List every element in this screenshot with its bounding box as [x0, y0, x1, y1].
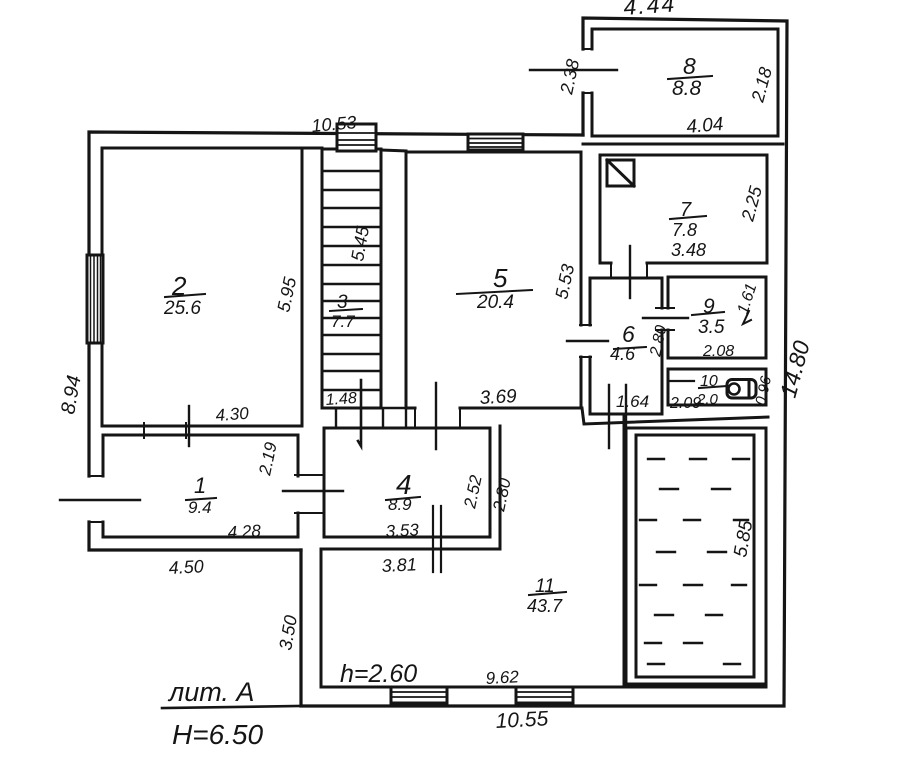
svg-text:2.38: 2.38: [556, 57, 583, 96]
svg-text:2.52: 2.52: [460, 473, 486, 511]
svg-text:1.48: 1.48: [325, 390, 357, 409]
svg-text:3.69: 3.69: [479, 386, 517, 409]
svg-text:10.55: 10.55: [495, 707, 549, 733]
svg-text:3.53: 3.53: [385, 520, 420, 541]
svg-text:4.30: 4.30: [215, 404, 250, 425]
svg-text:10.53: 10.53: [311, 112, 358, 136]
svg-text:9: 9: [703, 295, 715, 318]
svg-text:9.62: 9.62: [485, 667, 520, 688]
svg-text:8.8: 8.8: [672, 77, 702, 100]
svg-text:4.6: 4.6: [610, 344, 636, 364]
svg-text:4.44: 4.44: [623, 0, 677, 20]
svg-text:3.48: 3.48: [671, 240, 706, 260]
svg-text:3.5: 3.5: [698, 317, 725, 338]
svg-text:7.8: 7.8: [672, 220, 697, 240]
svg-text:43.7: 43.7: [527, 596, 563, 616]
svg-text:4.50: 4.50: [168, 556, 204, 578]
svg-text:9.4: 9.4: [188, 498, 212, 517]
svg-text:0.96: 0.96: [752, 374, 775, 407]
svg-text:h=2.60: h=2.60: [340, 660, 417, 688]
svg-text:5.95: 5.95: [273, 274, 300, 313]
svg-text:4.04: 4.04: [686, 114, 725, 138]
svg-text:1: 1: [194, 473, 206, 498]
svg-text:2: 2: [171, 271, 187, 301]
svg-text:25.6: 25.6: [163, 298, 201, 319]
svg-text:5: 5: [493, 263, 508, 293]
svg-text:H=6.50: H=6.50: [172, 719, 263, 750]
svg-text:10: 10: [700, 373, 718, 390]
svg-text:14.80: 14.80: [775, 338, 815, 401]
svg-text:1.64: 1.64: [616, 392, 649, 411]
svg-text:2.19: 2.19: [255, 440, 281, 478]
svg-text:11: 11: [535, 576, 555, 597]
svg-text:2.80: 2.80: [489, 476, 515, 514]
svg-text:2.08: 2.08: [702, 343, 734, 360]
svg-text:1.61: 1.61: [735, 281, 761, 316]
svg-text:5.53: 5.53: [551, 262, 578, 300]
svg-text:2.25: 2.25: [737, 183, 766, 224]
svg-text:20.4: 20.4: [476, 292, 514, 313]
svg-text:8.94: 8.94: [57, 374, 85, 416]
svg-text:3.50: 3.50: [275, 614, 301, 652]
svg-text:4.28: 4.28: [227, 521, 262, 542]
svg-text:2.18: 2.18: [747, 65, 776, 105]
svg-text:7: 7: [680, 199, 692, 221]
svg-text:3: 3: [337, 292, 348, 313]
svg-text:2.0: 2.0: [696, 391, 719, 408]
svg-text:5.45: 5.45: [347, 224, 373, 263]
svg-text:8: 8: [683, 53, 696, 79]
svg-text:7.7: 7.7: [331, 312, 355, 331]
svg-text:3.81: 3.81: [381, 554, 417, 576]
svg-text:лит. А: лит. А: [167, 677, 254, 707]
svg-text:8.9: 8.9: [388, 495, 412, 514]
